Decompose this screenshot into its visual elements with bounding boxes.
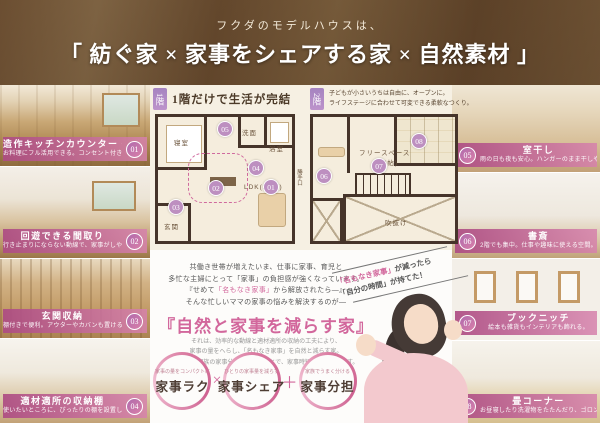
circle-small-text: 家族でうまく分ける [305, 368, 350, 375]
caption-line-2: ライフステージに合わせて可変できる柔軟なつくり。 [329, 99, 473, 109]
plan-marker-03: 03 [168, 199, 184, 215]
fist-decor [356, 334, 376, 356]
feature-text: 玄関収納 棚付きで便利。アウターやカバンも置ける。 [3, 311, 122, 330]
feature-label-06: 06 書斎 2階でも集中。仕事や趣味に使える空間。 [455, 229, 597, 253]
feature-label-02: 回遊できる間取り 行き止まりにならない動線で、家事がしやすい。 02 [3, 229, 147, 253]
fist-decor [444, 320, 462, 340]
feature-desc: 絵本も雑貨もインテリアも飾れる。 [480, 325, 597, 333]
feature-photo-tatami-corner: 08 畳コーナー お昼寝したり洗濯物をたたんだり、ゴロンと過ごせる和の空間。 [452, 341, 600, 423]
niche-decor [558, 271, 580, 303]
header-banner: フクダのモデルハウスは、 「 紡ぐ家 × 家事をシェアする家 × 自然素材 」 [0, 0, 600, 85]
operator-plus: ＋ [282, 369, 298, 393]
floorplan-2f: 2階 子どもが小さいうちは自由に、オープンに。 ライフステージに合わせて可変でき… [310, 88, 462, 248]
message-line-3-pre: 『せめて [186, 287, 215, 294]
circle-kajibuntan: 家族でうまく分ける 家事分担 [299, 352, 357, 410]
circle-content: 家事の量をコンパクトに 家事ラク [153, 352, 211, 410]
wall [347, 117, 350, 173]
floor-1f-badge: 1階 [153, 88, 167, 110]
plan-marker-06: 06 [316, 168, 332, 184]
feature-text: 書斎 2階でも集中。仕事や趣味に使える空間。 [480, 231, 597, 250]
room-label-backdoor: 勝手口 [295, 169, 303, 186]
header-subtitle: フクダのモデルハウスは、 [216, 17, 384, 33]
feature-desc: 使いたいところに、ぴったりの棚を設置します。 [3, 408, 122, 416]
room-label-void: 吹抜け [385, 217, 408, 227]
feature-title: 玄関収納 [3, 311, 122, 323]
circle-label: 家事シェア [218, 376, 286, 395]
feature-label-08: 08 畳コーナー お昼寝したり洗濯物をたたんだり、ゴロンと過ごせる和の空間。 [455, 394, 597, 418]
concept-title: 『自然と家事を減らす家』 [152, 312, 380, 337]
feature-number-badge: 01 [126, 141, 143, 158]
circle-kajishare: ひとりの家事量を減らす 家事シェア [223, 352, 281, 410]
feature-text: ブックニッチ 絵本も雑貨もインテリアも飾れる。 [480, 313, 597, 332]
plan-marker-04: 04 [248, 160, 264, 176]
feature-label-01: 造作キッチンカウンター・収納 お料理にフル活用できる。コンセント付きニッチも。 … [3, 137, 147, 161]
feature-label-07: 07 ブックニッチ 絵本も雑貨もインテリアも飾れる。 [455, 311, 597, 335]
feature-text: 造作キッチンカウンター・収納 お料理にフル活用できる。コンセント付きニッチも。 [3, 139, 122, 158]
plan-marker-02: 02 [208, 180, 224, 196]
circle-content: ひとりの家事量を減らす 家事シェア [223, 352, 281, 410]
plan-marker-07: 07 [371, 158, 387, 174]
floorplan-1f: 1階 1階だけで生活が完結 寝室 洗面 浴室 LDK(21帖) 玄関 勝手口 0… [153, 88, 307, 248]
feature-text: 室干し 雨の日も夜も安心。ハンガーのまま干しやすい。 [480, 145, 597, 164]
circle-label: 家事分担 [301, 376, 355, 395]
feature-photo-study: 06 書斎 2階でも集中。仕事や趣味に使える空間。 [452, 173, 600, 258]
circle-small-text: ひとりの家事量を減らす [224, 368, 279, 375]
circle-kajiraku: 家事の量をコンパクトに 家事ラク [153, 352, 211, 410]
feature-text: 畳コーナー お昼寝したり洗濯物をたたんだり、ゴロンと過ごせる和の空間。 [480, 396, 597, 415]
model-house-flyer: フクダのモデルハウスは、 「 紡ぐ家 × 家事をシェアする家 × 自然素材 」 … [0, 0, 600, 423]
floorplan-1f-title: 1階だけで生活が完結 [172, 91, 291, 107]
feature-title: 造作キッチンカウンター・収納 [3, 139, 122, 151]
message-line-1: 共働き世帯が増えたいま、仕事に家事、育児と [152, 262, 380, 274]
feature-number-badge: 03 [126, 313, 143, 330]
floorplan-2f-caption: 子どもが小さいうちは自由に、オープンに。 ライフステージに合わせて可変できる柔軟… [329, 89, 473, 109]
feature-photo-kitchen-counter: 造作キッチンカウンター・収納 お料理にフル活用できる。コンセント付きニッチも。 … [0, 85, 150, 166]
caption-line-1: 子どもが小さいうちは自由に、オープンに。 [329, 89, 473, 99]
sweater-decor [364, 353, 468, 423]
feature-desc: 棚付きで便利。アウターやカバンも置ける。 [3, 323, 122, 331]
feature-photo-entrance-storage: 玄関収納 棚付きで便利。アウターやカバンも置ける。 03 [0, 259, 150, 338]
window-decor [102, 93, 140, 127]
feature-label-03: 玄関収納 棚付きで便利。アウターやカバンも置ける。 03 [3, 309, 147, 333]
room-label-bedroom: 寝室 [174, 137, 189, 147]
concept-circles: 家事の量をコンパクトに 家事ラク × ひとりの家事量を減らす 家事シェア ＋ 家… [148, 352, 362, 410]
wall [188, 203, 191, 241]
feature-desc: 雨の日も夜も安心。ハンガーのまま干しやすい。 [480, 157, 597, 165]
floorplan-2f-drawing: フリースペース (16帖) 吹抜け 08 07 06 [310, 114, 458, 244]
floorplan-1f-drawing: 寝室 洗面 浴室 LDK(21帖) 玄関 勝手口 05 04 02 01 03 [155, 114, 295, 244]
room-label-bath: 浴室 [269, 143, 284, 153]
plan-marker-08: 08 [411, 133, 427, 149]
feature-title: 書斎 [480, 231, 597, 243]
feature-title: ブックニッチ [480, 313, 597, 325]
feature-label-05: 05 室干し 雨の日も夜も安心。ハンガーのまま干しやすい。 [455, 143, 597, 167]
bathtub-decor [270, 122, 289, 143]
niche-decor [516, 271, 538, 303]
window-decor [92, 181, 136, 211]
feature-photo-storage-shelf: 適材適所の収納棚 使いたいところに、ぴったりの棚を設置します。 04 [0, 339, 150, 423]
feature-text: 回遊できる間取り 行き止まりにならない動線で、家事がしやすい。 [3, 231, 122, 250]
wall [238, 117, 241, 145]
feature-photo-indoor-drying: 05 室干し 雨の日も夜も安心。ハンガーのまま干しやすい。 [452, 85, 600, 172]
floorplan-1f-header: 1階 1階だけで生活が完結 [153, 88, 307, 110]
feature-desc: 2階でも集中。仕事や趣味に使える空間。 [480, 243, 597, 251]
circle-content: 家族でうまく分ける 家事分担 [299, 352, 357, 410]
message2-line-1: それは、効率的な動線と適材適所の収納の工夫により、 [152, 337, 380, 347]
desk-decor [318, 147, 345, 157]
feature-number-badge: 04 [126, 398, 143, 415]
circle-label: 家事ラク [155, 376, 209, 395]
niche-decor [474, 271, 496, 303]
feature-text: 適材適所の収納棚 使いたいところに、ぴったりの棚を設置します。 [3, 396, 122, 415]
message-line-3-post: から解放されたら―』 [273, 287, 346, 294]
feature-title: 畳コーナー [480, 396, 597, 408]
plan-marker-01: 01 [263, 179, 279, 195]
page-title: 「 紡ぐ家 × 家事をシェアする家 × 自然素材 」 [60, 37, 540, 69]
feature-photo-book-niche: 07 ブックニッチ 絵本も雑貨もインテリアも飾れる。 [452, 259, 600, 340]
closet-decor [313, 198, 343, 241]
room-label-wash: 洗面 [242, 127, 257, 137]
feature-desc: お料理にフル活用できる。コンセント付きニッチも。 [3, 151, 122, 159]
feature-title: 適材適所の収納棚 [3, 396, 122, 408]
floor-2f-badge: 2階 [310, 88, 324, 110]
plan-marker-05: 05 [217, 121, 233, 137]
feature-label-04: 適材適所の収納棚 使いたいところに、ぴったりの棚を設置します。 04 [3, 394, 147, 418]
feature-title: 室干し [480, 145, 597, 157]
circle-small-text: 家事の量をコンパクトに [155, 368, 210, 375]
dining-table-decor [258, 193, 286, 227]
room-label-entrance: 玄関 [164, 221, 179, 231]
room-label-freespace: フリースペース [359, 147, 410, 157]
feature-desc: 行き止まりにならない動線で、家事がしやすい。 [3, 243, 122, 251]
wall [264, 117, 267, 145]
feature-number-badge: 02 [126, 233, 143, 250]
message-line-3-highlight: 「名もなき家事」 [215, 287, 273, 294]
feature-desc: お昼寝したり洗濯物をたたんだり、ゴロンと過ごせる和の空間。 [480, 408, 597, 416]
feature-photo-circulation-layout: 回遊できる間取り 行き止まりにならない動線で、家事がしやすい。 02 [0, 167, 150, 258]
floorplan-2f-header: 2階 子どもが小さいうちは自由に、オープンに。 ライフステージに合わせて可変でき… [310, 88, 462, 110]
feature-title: 回遊できる間取り [3, 231, 122, 243]
